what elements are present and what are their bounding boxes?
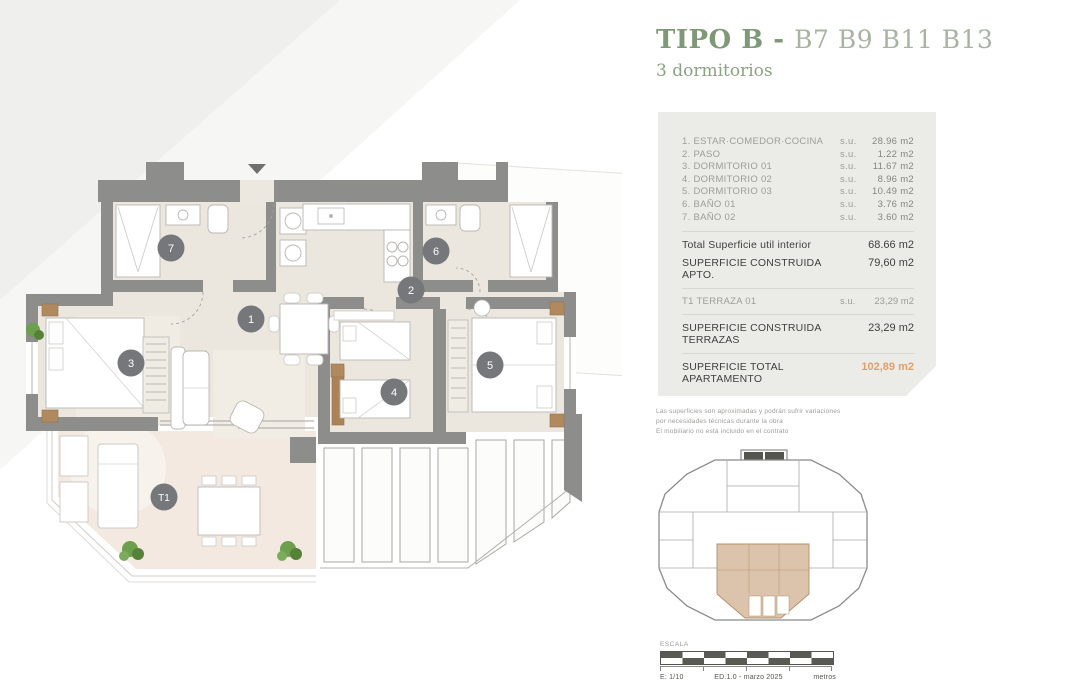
room-label-7: 7 <box>168 243 174 255</box>
total-apartamento-label: SUPERFICIE TOTAL APARTAMENTO <box>682 361 852 385</box>
terrace-shelf-2 <box>60 482 88 522</box>
room-area: 11.67 m2 <box>862 161 914 174</box>
title-units: B7 B9 B11 B13 <box>794 25 993 54</box>
room-area: 3.60 m2 <box>862 212 914 225</box>
construida-apto-label: SUPERFICIE CONSTRUIDA APTO. <box>682 257 852 281</box>
room-name: 7. BAÑO 02 <box>682 212 840 225</box>
room-area: 28.96 m2 <box>862 136 914 149</box>
terraza-label: T1 TERRAZA 01 <box>682 296 840 307</box>
construida-terrazas-label: SUPERFICIE CONSTRUIDA TERRAZAS <box>682 322 852 346</box>
total-apartamento-row: SUPERFICIE TOTAL APARTAMENTO 102,89 m2 <box>682 361 914 385</box>
scale-bar: ESCALA E: 1/10 ED.1.0 - marzo 2025 metro… <box>660 641 836 681</box>
room-area: 1.22 m2 <box>862 149 914 162</box>
title-separator: - <box>764 25 794 55</box>
surface-table-panel: 1. ESTAR·COMEDOR·COCINAs.u.28.96 m2 2. P… <box>658 112 936 396</box>
su-label: s.u. <box>840 174 862 187</box>
terrace-shelf <box>60 436 88 476</box>
divider <box>682 353 914 354</box>
table-row: 5. DORMITORIO 03s.u.10.49 m2 <box>682 186 914 199</box>
terrace <box>47 420 316 582</box>
room-name: 5. DORMITORIO 03 <box>682 186 840 199</box>
room-label-1: 1 <box>248 314 254 326</box>
scale-ticks <box>660 666 832 671</box>
sun-lounger <box>98 444 138 528</box>
entrance-arrow-icon <box>248 164 266 174</box>
room-name: 6. BAÑO 01 <box>682 199 840 212</box>
su-label: s.u. <box>840 199 862 212</box>
terraza-value: 23,29 m2 <box>862 296 914 307</box>
title-type: TIPO B <box>656 25 764 55</box>
scale-graphic <box>660 651 834 665</box>
room-name: 3. DORMITORIO 01 <box>682 161 840 174</box>
title-block: TIPO B - B7 B9 B11 B13 3 dormitorios <box>656 26 1056 81</box>
room-surface-list: 1. ESTAR·COMEDOR·COCINAs.u.28.96 m2 2. P… <box>682 136 914 224</box>
disclaimer: Las superficies son aproximadas y podrán… <box>656 407 956 437</box>
table-row: 7. BAÑO 02s.u.3.60 m2 <box>682 212 914 225</box>
total-util-label: Total Superficie util interior <box>682 239 852 251</box>
terraza-row: T1 TERRAZA 01 s.u. 23,29 m2 <box>682 296 914 307</box>
total-util-value: 68.66 m2 <box>852 239 914 251</box>
su-label: s.u. <box>840 161 862 174</box>
divider <box>682 231 914 232</box>
scale-unit: metros <box>813 674 836 681</box>
scale-ratio: E: 1/10 <box>660 674 684 681</box>
floor-plan: 1 2 3 4 5 6 7 T1 <box>18 152 622 584</box>
room-name: 4. DORMITORIO 02 <box>682 174 840 187</box>
table-row: 6. BAÑO 01s.u.3.76 m2 <box>682 199 914 212</box>
table-row: 2. PASOs.u.1.22 m2 <box>682 149 914 162</box>
divider <box>682 288 914 289</box>
su-label: s.u. <box>840 149 862 162</box>
room-area: 10.49 m2 <box>862 186 914 199</box>
total-apartamento-value: 102,89 m2 <box>852 361 914 373</box>
terrace-label: T1 <box>158 493 170 504</box>
room-label-5: 5 <box>487 360 493 372</box>
room-area: 8.96 m2 <box>862 174 914 187</box>
scale-edition: ED.1.0 - marzo 2025 <box>714 674 782 681</box>
construida-terrazas-row: SUPERFICIE CONSTRUIDA TERRAZAS 23,29 m2 <box>682 322 914 346</box>
room-label-3: 3 <box>128 358 134 370</box>
total-util-row: Total Superficie util interior 68.66 m2 <box>682 239 914 251</box>
page-title: TIPO B - B7 B9 B11 B13 <box>656 26 1056 55</box>
table-row: 1. ESTAR·COMEDOR·COCINAs.u.28.96 m2 <box>682 136 914 149</box>
disclaimer-line: por necesidades técnicas durante la obra <box>656 417 956 427</box>
scale-label: ESCALA <box>660 641 836 648</box>
scale-row-bottom <box>661 658 833 664</box>
table-row: 3. DORMITORIO 01s.u.11.67 m2 <box>682 161 914 174</box>
su-label: s.u. <box>840 212 862 225</box>
scale-meta: E: 1/10 ED.1.0 - marzo 2025 metros <box>660 674 836 681</box>
disclaimer-line: El mobiliario no está incluido en el con… <box>656 427 956 437</box>
room-label-6: 6 <box>433 246 439 258</box>
title-subtitle: 3 dormitorios <box>656 61 1056 81</box>
room-name: 1. ESTAR·COMEDOR·COCINA <box>682 136 840 149</box>
su-label: s.u. <box>840 136 862 149</box>
room-label-2: 2 <box>408 285 414 297</box>
su-label: s.u. <box>840 186 862 199</box>
room-name: 2. PASO <box>682 149 840 162</box>
room-area: 3.76 m2 <box>862 199 914 212</box>
construida-terrazas-value: 23,29 m2 <box>852 322 914 334</box>
construida-apto-row: SUPERFICIE CONSTRUIDA APTO. 79,60 m2 <box>682 257 914 281</box>
divider <box>682 314 914 315</box>
room-label-4: 4 <box>391 387 397 399</box>
brochure-page: { "header": { "title": "TIPO B", "separa… <box>0 0 1070 682</box>
table-row: 4. DORMITORIO 02s.u.8.96 m2 <box>682 174 914 187</box>
disclaimer-line: Las superficies son aproximadas y podrán… <box>656 407 956 417</box>
building-key-plan <box>653 448 875 638</box>
pergola-louvres <box>320 440 578 568</box>
su-label: s.u. <box>840 296 862 307</box>
construida-apto-value: 79,60 m2 <box>852 257 914 269</box>
